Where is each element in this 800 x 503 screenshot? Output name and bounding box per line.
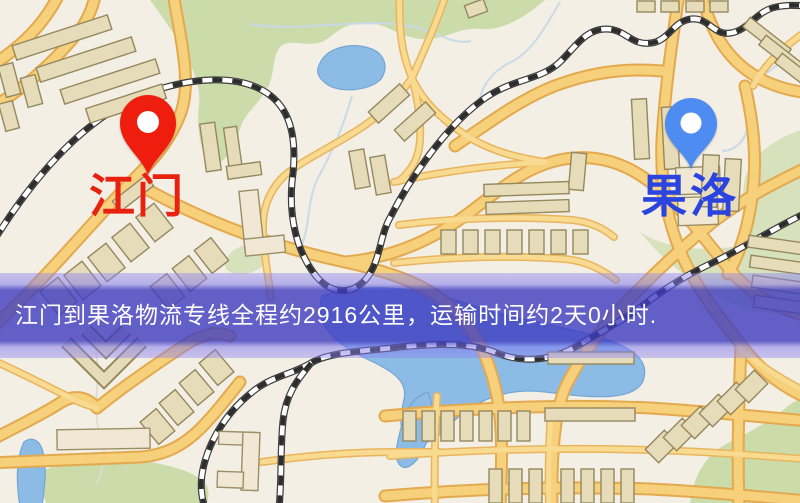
route-info-text: 江门到果洛物流专线全程约2916公里，运输时间约2天0小时.: [15, 291, 657, 339]
destination-place-label: 果洛: [641, 173, 739, 219]
origin-pin-icon: [118, 95, 178, 179]
map-canvas: 江门 果洛 江门到果洛物流专线全程约2916公里，运输时间约2天0小时.: [0, 0, 800, 503]
route-info-banner: 江门到果洛物流专线全程约2916公里，运输时间约2天0小时.: [0, 273, 800, 358]
destination-pin-icon: [663, 98, 719, 172]
map-graphic: [0, 0, 800, 503]
origin-place-label: 江门: [89, 173, 185, 219]
